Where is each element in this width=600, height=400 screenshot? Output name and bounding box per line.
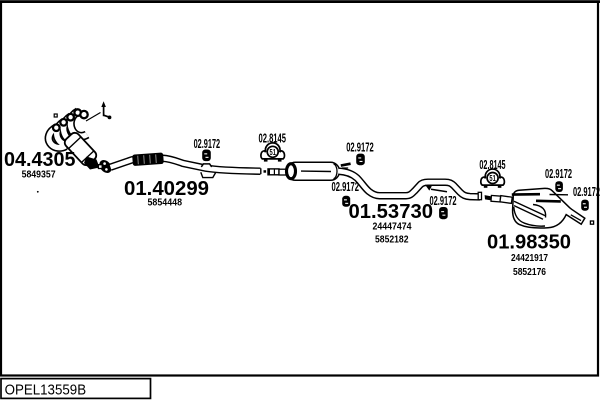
svg-text:5852182: 5852182 [375,235,409,246]
svg-text:02.9172: 02.9172 [430,194,457,208]
svg-text:04.4305: 04.4305 [4,149,76,171]
svg-text:02.9172: 02.9172 [545,167,572,181]
svg-text:24421917: 24421917 [511,253,548,264]
svg-text:51: 51 [489,173,496,183]
svg-text:02.8145: 02.8145 [479,158,505,172]
svg-text:02.8145: 02.8145 [259,132,287,146]
svg-text:01.53730: 01.53730 [349,201,434,223]
svg-text:01.98350: 01.98350 [487,232,571,254]
svg-text:02.9172: 02.9172 [332,180,360,194]
svg-text:51: 51 [270,147,277,157]
svg-text:24447474: 24447474 [373,221,412,232]
svg-text:02.9172: 02.9172 [346,140,374,154]
svg-text:02.9172: 02.9172 [573,185,600,199]
svg-text:5854448: 5854448 [148,198,183,209]
svg-text:02.9172: 02.9172 [194,137,221,151]
svg-text:5852176: 5852176 [513,267,546,278]
svg-text:01.40299: 01.40299 [124,178,209,200]
svg-text:OPEL13559B: OPEL13559B [5,382,87,398]
svg-text:5849357: 5849357 [22,169,56,180]
